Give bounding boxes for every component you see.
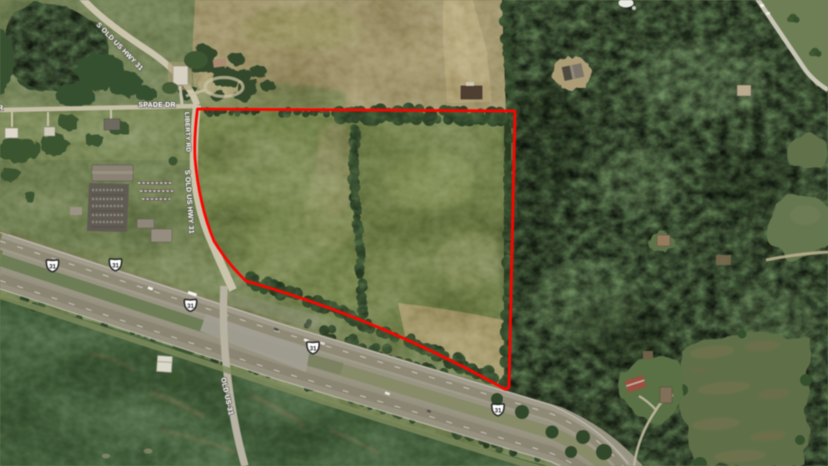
svg-text:SPADE DR: SPADE DR bbox=[138, 102, 175, 109]
svg-text:R: R bbox=[0, 105, 3, 112]
svg-text:LIBERTY RD: LIBERTY RD bbox=[183, 112, 191, 153]
